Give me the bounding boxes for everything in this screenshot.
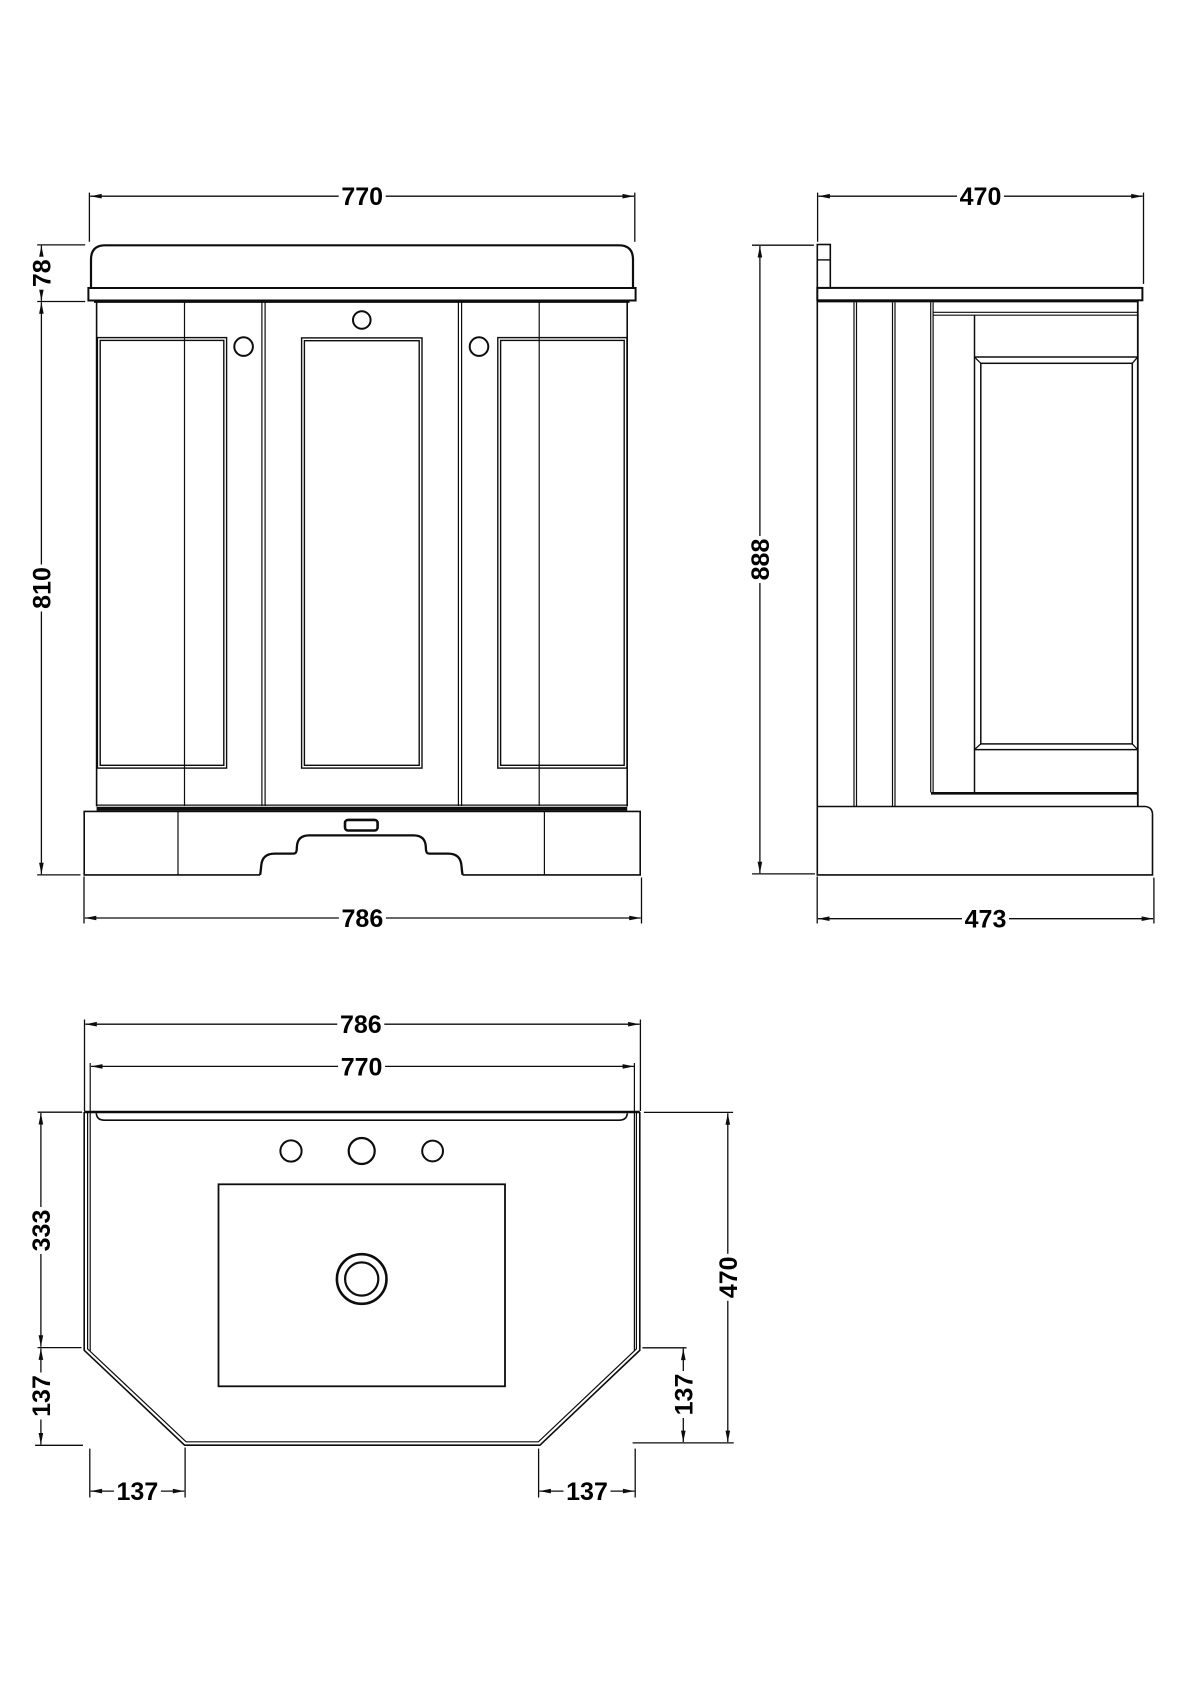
svg-text:786: 786 [340, 1011, 382, 1039]
svg-text:770: 770 [341, 183, 383, 211]
svg-text:473: 473 [965, 906, 1007, 934]
svg-text:137: 137 [566, 1478, 608, 1506]
svg-text:137: 137 [117, 1478, 159, 1506]
svg-text:786: 786 [342, 905, 384, 933]
svg-text:888: 888 [747, 539, 775, 581]
svg-text:137: 137 [670, 1374, 698, 1416]
svg-text:470: 470 [715, 1256, 743, 1298]
svg-text:810: 810 [28, 567, 56, 609]
svg-text:470: 470 [960, 183, 1002, 211]
svg-text:333: 333 [28, 1210, 56, 1252]
svg-text:770: 770 [341, 1053, 383, 1081]
svg-text:78: 78 [28, 259, 56, 287]
svg-text:137: 137 [28, 1375, 56, 1417]
